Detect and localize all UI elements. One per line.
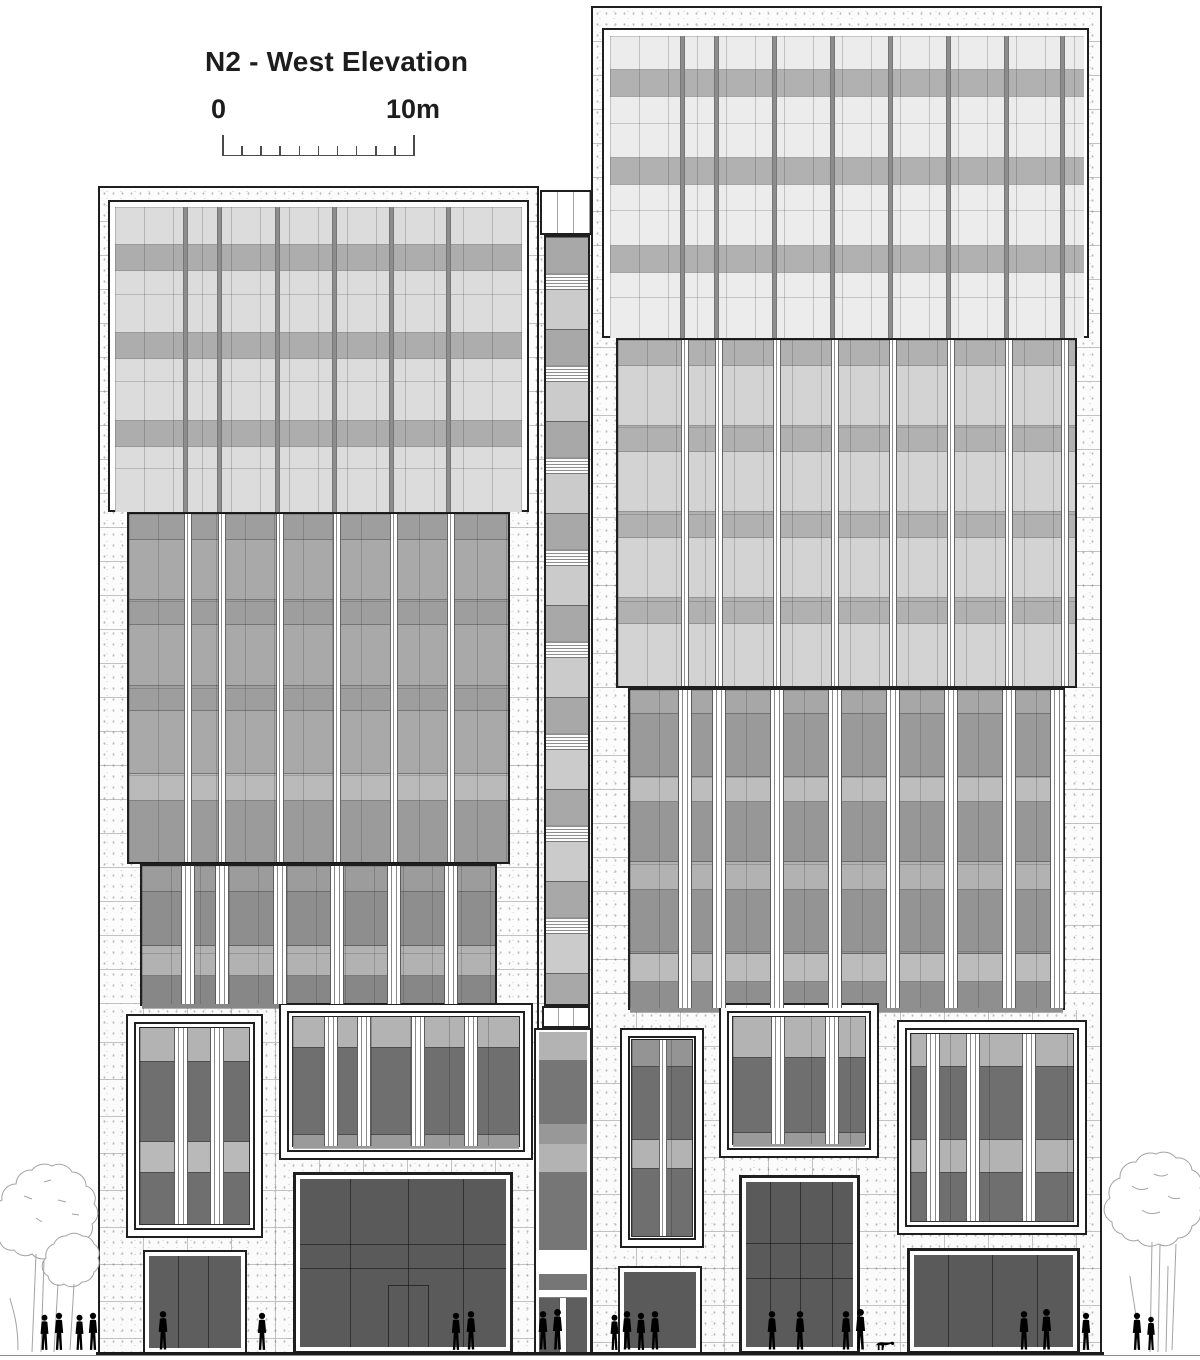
mullion-fin — [678, 690, 692, 1008]
spandrel-band — [630, 982, 1063, 1012]
mullion-fin — [771, 1017, 785, 1144]
person-figure — [548, 1308, 567, 1352]
entrance-panel-line — [832, 1182, 833, 1347]
mullion-fin — [944, 690, 958, 1008]
major-mullion — [275, 207, 280, 512]
spandrel-band-light — [630, 954, 1063, 982]
mullion-fin — [218, 514, 226, 862]
mullion-fin — [464, 1017, 478, 1146]
mullion-fin — [831, 340, 839, 686]
mullion-fin — [411, 1017, 425, 1146]
mullion-fin — [273, 866, 287, 1004]
glazing-panel — [539, 1060, 587, 1124]
dog-figure — [874, 1338, 896, 1352]
mullion-fin — [210, 1028, 224, 1224]
mullion-fin — [825, 1017, 839, 1144]
entrance-panel-line — [300, 1244, 506, 1245]
spandrel-band-light — [630, 777, 1063, 802]
mullion-fin — [712, 690, 726, 1008]
major-mullion — [389, 207, 394, 512]
spandrel-band — [115, 245, 522, 270]
mullion-fin — [886, 690, 900, 1008]
mullion-fin — [333, 514, 341, 862]
person-figure — [1015, 1310, 1033, 1352]
major-mullion — [772, 36, 777, 338]
major-mullion — [946, 36, 951, 338]
elevation-drawing: N2 - West Elevation 0 10m — [0, 0, 1200, 1360]
glazing-panel — [539, 1274, 587, 1290]
mullion-fin — [681, 340, 689, 686]
spandrel-band — [630, 890, 1063, 954]
spandrel-band — [630, 802, 1063, 862]
mullion-fin — [444, 866, 458, 1004]
entrance-door-leaf — [388, 1285, 429, 1347]
mullion-fin — [330, 866, 344, 1004]
person-figure — [851, 1308, 870, 1352]
major-mullion — [332, 207, 337, 512]
glazing-band — [733, 1017, 865, 1057]
person-figure — [763, 1310, 781, 1352]
left-tower-lower-glazing — [140, 864, 497, 1006]
main-entrance-frame — [293, 1172, 513, 1354]
major-mullion — [1004, 36, 1009, 338]
left-tower-mid-glazing — [127, 512, 510, 864]
mullion-fin — [659, 1040, 667, 1236]
entrance-panel-line — [948, 1255, 949, 1347]
major-mullion — [714, 36, 719, 338]
scale-bar — [222, 136, 415, 156]
glazing-band — [140, 1028, 249, 1061]
entrance-panel-line — [746, 1278, 853, 1279]
mullion-fin — [926, 1034, 940, 1221]
glazing-band — [140, 1142, 249, 1172]
spandrel-band — [115, 421, 522, 446]
person-figure — [1143, 1316, 1159, 1352]
core-louver-strip — [544, 235, 590, 1006]
glazing-panel — [539, 1144, 587, 1172]
mullion-fin — [1005, 340, 1013, 686]
core-top-panel — [540, 190, 592, 235]
mullion-fin — [276, 514, 284, 862]
entrance-panel-line — [350, 1179, 351, 1347]
mullion-fin — [889, 340, 897, 686]
door-panel-line — [208, 1256, 209, 1348]
person-figure — [646, 1310, 664, 1352]
left-tower-upper-glazing — [115, 207, 522, 512]
left-tower-roof-line — [98, 186, 539, 188]
entrance-panel-line — [992, 1255, 993, 1347]
mullion-fin — [215, 866, 229, 1004]
glazing-panel — [539, 1124, 587, 1144]
right-tower-mid-glazing — [616, 338, 1077, 688]
drawing-title: N2 - West Elevation — [205, 46, 468, 78]
mullion-fin — [324, 1017, 338, 1146]
glazing-panel — [539, 1032, 587, 1060]
door-panel-line — [178, 1256, 179, 1348]
glazing-band — [733, 1133, 865, 1146]
mullion-fin — [715, 340, 723, 686]
major-mullion — [888, 36, 893, 338]
mullion-fin — [966, 1034, 980, 1221]
ground-line-extension — [0, 1355, 1200, 1356]
podium-window-glazing — [910, 1033, 1074, 1222]
core-lower-strip — [534, 1028, 592, 1354]
person-figure — [154, 1310, 172, 1352]
mullion-fin — [947, 340, 955, 686]
right-tower-roof-line — [591, 6, 1102, 8]
spandrel-band — [630, 714, 1063, 777]
mullion-fin — [828, 690, 842, 1008]
mullion-fin — [181, 866, 195, 1004]
major-mullion — [830, 36, 835, 338]
major-mullion — [680, 36, 685, 338]
major-mullion — [183, 207, 188, 512]
entrance-panel-line — [746, 1243, 853, 1244]
person-figure — [253, 1312, 271, 1352]
mullion-fin — [357, 1017, 371, 1146]
mullion-fin — [770, 690, 784, 1008]
right-tower-lower-glazing — [628, 688, 1065, 1010]
podium-window-glazing — [139, 1027, 250, 1225]
person-figure — [50, 1312, 68, 1352]
right-tower-upper-glazing — [610, 36, 1084, 338]
mullion-fin — [184, 514, 192, 862]
major-mullion — [446, 207, 451, 512]
person-figure — [1077, 1312, 1095, 1352]
core-spandrel-panel — [542, 1006, 590, 1028]
person-figure — [1037, 1308, 1056, 1352]
mullion-fin — [1050, 690, 1064, 1008]
major-mullion — [1060, 36, 1065, 338]
person-figure — [84, 1312, 102, 1352]
mullion-fin — [773, 340, 781, 686]
mullion-fin — [387, 866, 401, 1004]
scale-end-label: 10m — [370, 94, 440, 125]
mullion-fin — [174, 1028, 188, 1224]
mullion-fin — [447, 514, 455, 862]
entrance-panel-line — [300, 1268, 506, 1269]
spandrel-band — [115, 333, 522, 358]
podium-window-glazing — [631, 1039, 693, 1237]
glazing-panel — [539, 1172, 587, 1250]
mullion-fin — [1002, 690, 1016, 1008]
person-figure — [791, 1310, 809, 1352]
scale-start-label: 0 — [211, 94, 226, 125]
podium-window-glazing — [292, 1016, 520, 1147]
mullion-fin — [1061, 340, 1069, 686]
mullion-fin — [390, 514, 398, 862]
major-mullion — [217, 207, 222, 512]
spandrel-band-light — [630, 862, 1063, 890]
mullion-fin — [1022, 1034, 1036, 1221]
podium-window-glazing — [732, 1016, 866, 1145]
person-figure — [462, 1310, 480, 1352]
